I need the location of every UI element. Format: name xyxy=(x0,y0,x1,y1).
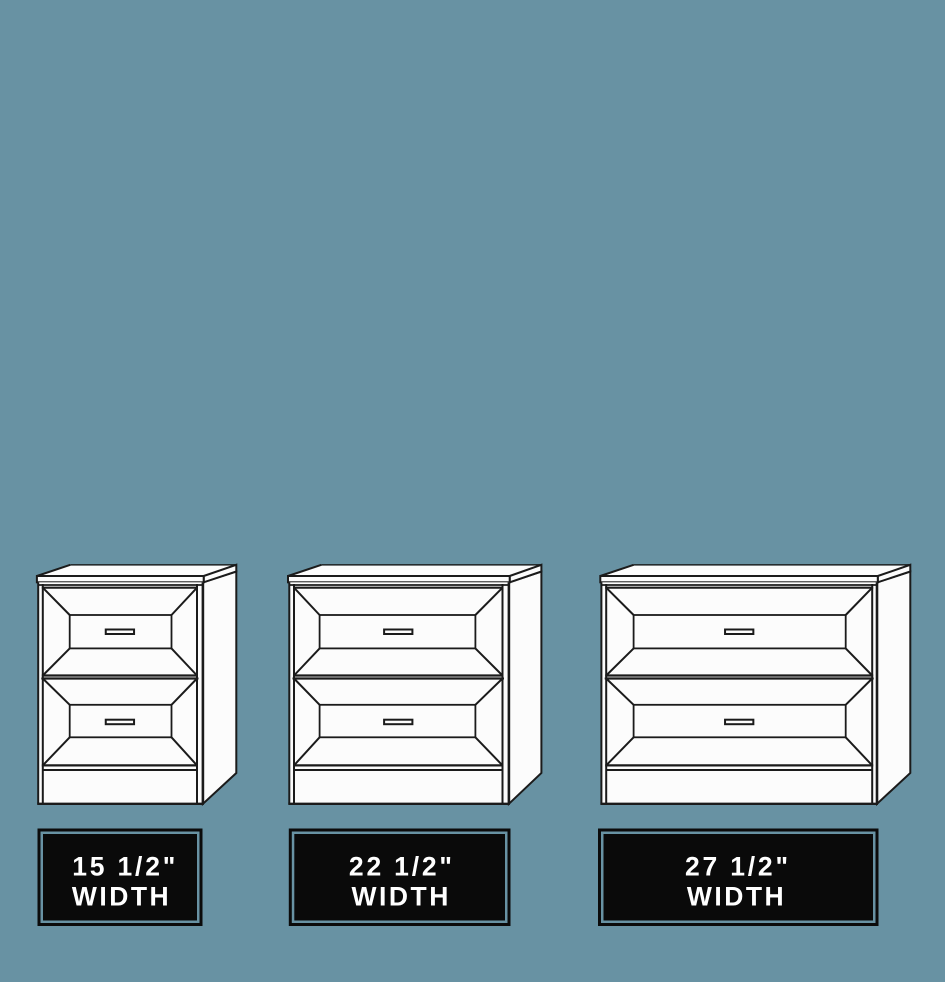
svg-text:15 1/2": 15 1/2" xyxy=(72,852,178,882)
svg-text:WIDTH: WIDTH xyxy=(352,882,451,912)
svg-text:27 1/2": 27 1/2" xyxy=(685,852,791,882)
svg-text:WIDTH: WIDTH xyxy=(72,882,171,912)
svg-text:22 1/2": 22 1/2" xyxy=(349,852,455,882)
svg-text:WIDTH: WIDTH xyxy=(687,882,786,912)
